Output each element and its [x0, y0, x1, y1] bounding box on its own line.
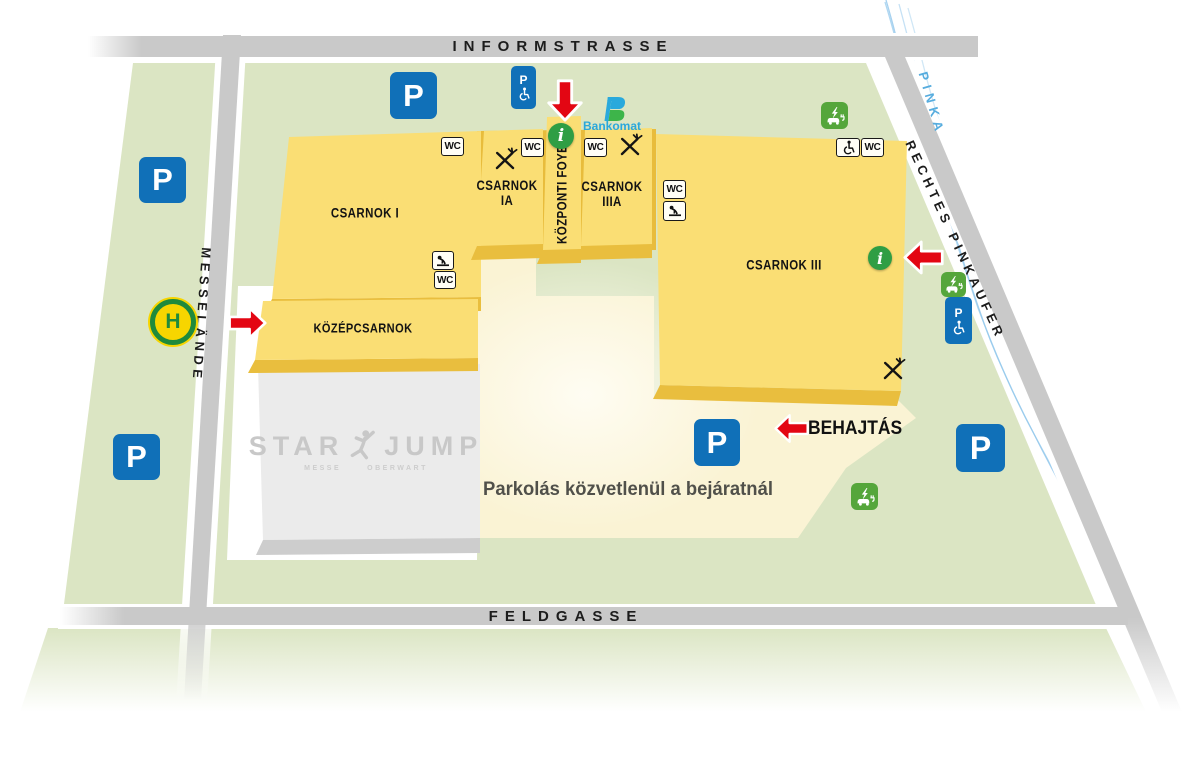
accessible-parking-sign: P [945, 297, 972, 344]
wc-badge: WC [441, 137, 464, 156]
hall1a-base-edge [471, 244, 543, 260]
kozep-label: KÖZÉPCSARNOK [313, 321, 412, 336]
parking-sign: P [956, 424, 1005, 472]
accessible-parking-sign: P [511, 66, 536, 109]
bankomat-label: Bankomat [583, 119, 641, 133]
wc-badge: WC [521, 138, 544, 157]
hall3a-label: CSARNOKIIIA [581, 179, 642, 209]
parking-note: Parkolás közvetlenül a bejáratnál [483, 479, 773, 501]
entry-arrow-down [543, 80, 587, 125]
ev-charging-icon [851, 483, 878, 510]
restaurant-icon [617, 133, 643, 164]
info-icon: i [548, 123, 574, 149]
wheelchair-icon [951, 320, 966, 335]
hall1a-label: CSARNOKIA [476, 178, 537, 208]
entry-arrow-behajtas [774, 410, 810, 452]
info-icon: i [868, 246, 892, 270]
street-label-feldgasse: FELDGASSE [489, 608, 644, 625]
parking-sign: P [113, 434, 160, 480]
bus-stop-sign: H [150, 299, 196, 345]
restaurant-icon [492, 147, 518, 178]
starjump-sub-left: MESSE [304, 465, 341, 472]
hall3a-base-edge [575, 244, 652, 260]
parking-sign: P [390, 72, 437, 119]
entry-arrow-right [227, 305, 267, 346]
wc-badge: WC [434, 271, 456, 289]
starjump-word-right: JUMP [384, 431, 483, 462]
starjump-word-left: STAR [249, 431, 345, 462]
wc-badge: WC [584, 138, 607, 157]
foyer-base-edge [537, 249, 581, 264]
hall1-label: CSARNOK I [331, 206, 399, 221]
wc-badge: WC [663, 180, 686, 199]
parking-sign: P [694, 419, 740, 466]
wc-badge: WC [861, 138, 884, 157]
ev-charging-icon [821, 102, 848, 129]
jumping-figure-icon [346, 428, 382, 464]
hall3-label: CSARNOK III [746, 258, 821, 273]
site-map: INFORMSTRASSE FELDGASSE MESSELÄNDE RECHT… [0, 0, 1200, 768]
starjump-logo: STAR JUMP MESSE OBERWART [249, 428, 484, 472]
parking-sign: P [139, 157, 186, 203]
starjump-sub-right: OBERWART [367, 465, 428, 472]
baby-changing-icon [432, 251, 454, 270]
wheelchair-icon [517, 87, 531, 101]
wheelchair-icon [836, 138, 860, 157]
foyer-label: KÖZPONTI FOYER [555, 136, 570, 244]
entry-arrow-left [903, 239, 945, 281]
starjump-building-shadow [256, 538, 480, 555]
kozep-base-edge [248, 358, 478, 373]
street-label-informstrasse: INFORMSTRASSE [452, 38, 673, 55]
restaurant-icon [880, 357, 906, 388]
behajtas-label: BEHAJTÁS [808, 418, 902, 440]
baby-changing-icon [663, 201, 686, 221]
